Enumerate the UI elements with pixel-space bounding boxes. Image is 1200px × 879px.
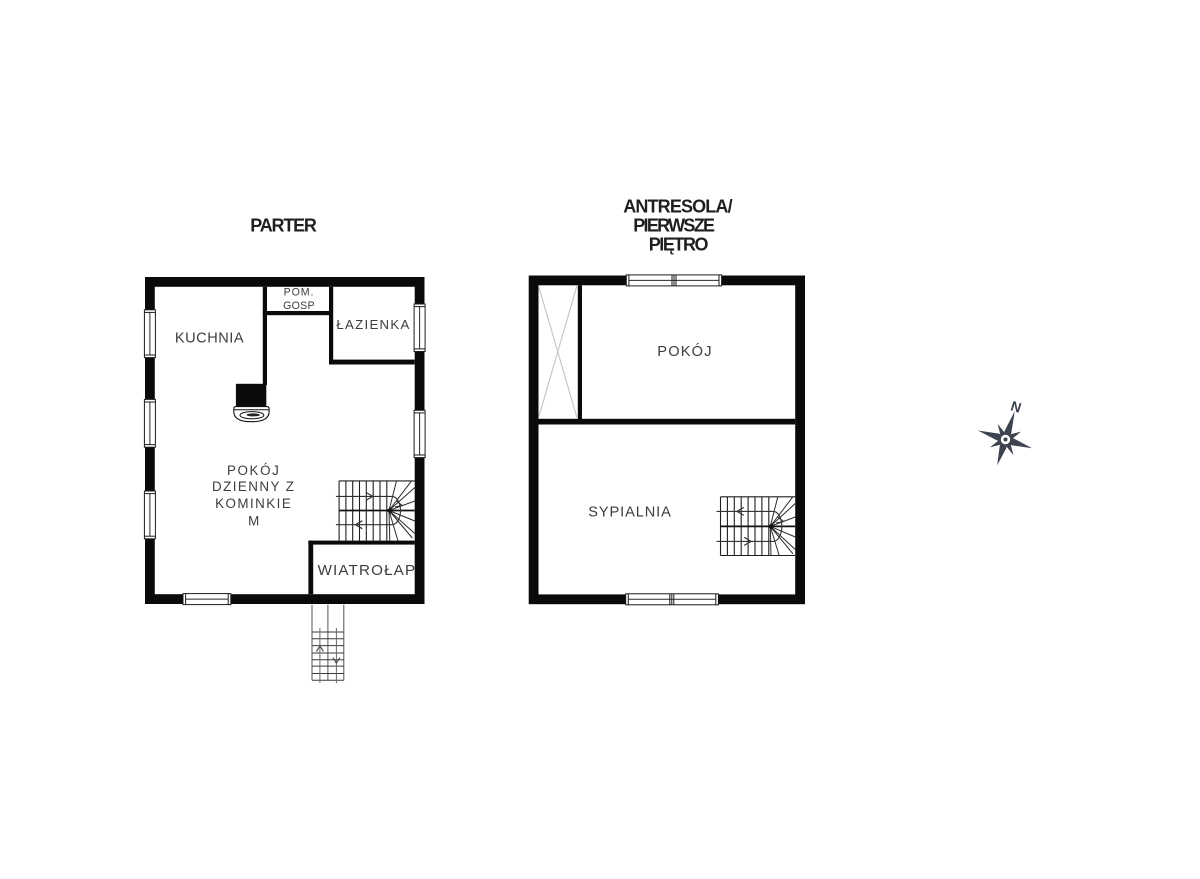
svg-text:ŁAZIENKA: ŁAZIENKA xyxy=(336,317,410,332)
svg-text:ANTRESOLA/: ANTRESOLA/ xyxy=(623,196,732,216)
svg-text:WIATROŁAP: WIATROŁAP xyxy=(318,562,417,579)
svg-text:SYPIALNIA: SYPIALNIA xyxy=(588,504,672,520)
svg-text:PIERWSZE: PIERWSZE xyxy=(633,215,715,235)
svg-text:POKÓJ: POKÓJ xyxy=(657,343,712,360)
svg-text:POM.: POM. xyxy=(284,287,315,299)
svg-text:PIĘTRO: PIĘTRO xyxy=(649,234,709,254)
svg-text:KUCHNIA: KUCHNIA xyxy=(175,331,244,347)
svg-text:DZIENNY Z: DZIENNY Z xyxy=(212,479,295,494)
svg-text:KOMINKIE: KOMINKIE xyxy=(215,496,292,511)
svg-text:M: M xyxy=(248,514,259,529)
svg-text:POKÓJ: POKÓJ xyxy=(227,463,280,478)
svg-text:PARTER: PARTER xyxy=(250,216,317,236)
svg-text:GOSP: GOSP xyxy=(283,300,315,312)
